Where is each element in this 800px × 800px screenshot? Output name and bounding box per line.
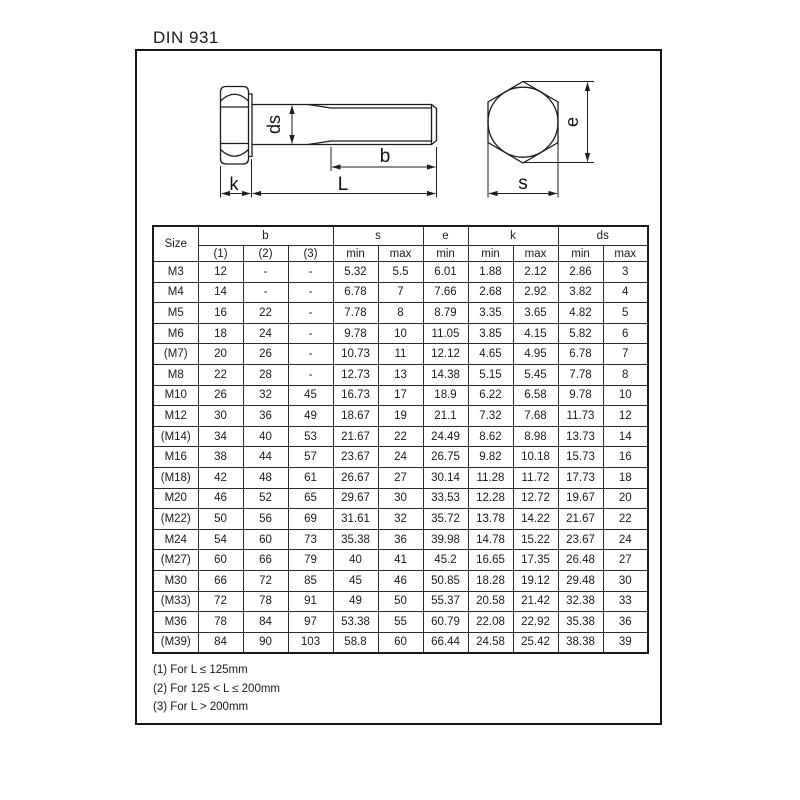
- table-cell: 42: [198, 467, 243, 488]
- dim-label-k: k: [230, 174, 240, 194]
- table-cell: 19.67: [558, 488, 603, 509]
- table-cell: 12.73: [333, 364, 378, 385]
- table-row: (M18)42486126.672730.1411.2811.7217.7318: [153, 467, 648, 488]
- table-cell: 49: [333, 591, 378, 612]
- technical-drawing: ds b k L s e: [136, 51, 658, 223]
- table-cell: 46: [378, 570, 423, 591]
- table-cell: 32.38: [558, 591, 603, 612]
- table-cell: -: [243, 282, 288, 303]
- table-row: M1638445723.672426.759.8210.1815.7316: [153, 447, 648, 468]
- table-cell: 65: [288, 488, 333, 509]
- table-cell: 3.65: [513, 303, 558, 324]
- table-cell: 84: [243, 612, 288, 633]
- table-cell: 26.48: [558, 550, 603, 571]
- column-subheader: (2): [243, 246, 288, 262]
- table-cell: 17.35: [513, 550, 558, 571]
- table-cell: 2.92: [513, 282, 558, 303]
- table-cell: 23.67: [558, 529, 603, 550]
- column-header-size: Size: [153, 226, 198, 262]
- table-cell: 8.98: [513, 426, 558, 447]
- column-group-header: b: [198, 226, 333, 246]
- table-cell: 14.38: [423, 364, 468, 385]
- table-row: M1026324516.731718.96.226.589.7810: [153, 385, 648, 406]
- table-cell: 6.01: [423, 262, 468, 283]
- table-cell: 60: [378, 632, 423, 653]
- table-cell: 66.44: [423, 632, 468, 653]
- table-cell: 38: [198, 447, 243, 468]
- table-cell: 21.42: [513, 591, 558, 612]
- table-cell: 14: [198, 282, 243, 303]
- table-cell: 11.73: [558, 406, 603, 427]
- table-cell: 10: [603, 385, 648, 406]
- table-cell: 36: [243, 406, 288, 427]
- page-title: DIN 931: [153, 28, 219, 48]
- footnotes: (1) For L ≤ 125mm (2) For 125 < L ≤ 200m…: [153, 661, 280, 717]
- table-cell: 30: [198, 406, 243, 427]
- table-cell: 20: [603, 488, 648, 509]
- table-cell: 60.79: [423, 612, 468, 633]
- table-cell: 23.67: [333, 447, 378, 468]
- table-cell: 28: [243, 364, 288, 385]
- table-cell: 26.67: [333, 467, 378, 488]
- table-cell: M12: [153, 406, 198, 427]
- table-cell: M3: [153, 262, 198, 283]
- table-cell: (M7): [153, 344, 198, 365]
- table-row: M51622-7.7888.793.353.654.825: [153, 303, 648, 324]
- table-row: (M33)727891495055.3720.5821.4232.3833: [153, 591, 648, 612]
- extension-lines: [221, 82, 595, 198]
- dim-label-ds: ds: [264, 115, 284, 134]
- column-group-header: ds: [558, 226, 648, 246]
- table-cell: 79: [288, 550, 333, 571]
- table-cell: (M33): [153, 591, 198, 612]
- table-cell: 55.37: [423, 591, 468, 612]
- table-cell: 22.92: [513, 612, 558, 633]
- table-cell: 22.08: [468, 612, 513, 633]
- table-cell: 58.8: [333, 632, 378, 653]
- table-cell: 39: [603, 632, 648, 653]
- table-cell: 18.9: [423, 385, 468, 406]
- table-cell: 26: [198, 385, 243, 406]
- column-subheader: (3): [288, 246, 333, 262]
- table-cell: 2.12: [513, 262, 558, 283]
- table-cell: 35.72: [423, 509, 468, 530]
- table-cell: 5: [603, 303, 648, 324]
- table-cell: 72: [243, 570, 288, 591]
- table-cell: 10.18: [513, 447, 558, 468]
- table-cell: 25.42: [513, 632, 558, 653]
- table-cell: 20: [198, 344, 243, 365]
- table-cell: 33: [603, 591, 648, 612]
- table-cell: 22: [243, 303, 288, 324]
- table-row: M312--5.325.56.011.882.122.863: [153, 262, 648, 283]
- table-cell: 27: [378, 467, 423, 488]
- column-subheader: max: [378, 246, 423, 262]
- table-cell: 15.22: [513, 529, 558, 550]
- table-row: M414--6.7877.662.682.923.824: [153, 282, 648, 303]
- table-cell: 49: [288, 406, 333, 427]
- table-cell: 30: [603, 570, 648, 591]
- table-cell: 40: [243, 426, 288, 447]
- table-cell: 5.32: [333, 262, 378, 283]
- column-subheader: min: [558, 246, 603, 262]
- table-cell: M16: [153, 447, 198, 468]
- column-subheader: min: [423, 246, 468, 262]
- table-cell: M5: [153, 303, 198, 324]
- table-cell: 10.73: [333, 344, 378, 365]
- table-row: (M27)606679404145.216.6517.3526.4827: [153, 550, 648, 571]
- column-subheader: max: [603, 246, 648, 262]
- dim-label-s: s: [518, 173, 528, 194]
- table-cell: 11.72: [513, 467, 558, 488]
- table-cell: 4.82: [558, 303, 603, 324]
- column-group-header: k: [468, 226, 558, 246]
- table-cell: 14.22: [513, 509, 558, 530]
- table-cell: 29.48: [558, 570, 603, 591]
- table-cell: 46: [198, 488, 243, 509]
- table-row: (M7)2026-10.731112.124.654.956.787: [153, 344, 648, 365]
- table-cell: 60: [198, 550, 243, 571]
- table-cell: 41: [378, 550, 423, 571]
- table-cell: 22: [378, 426, 423, 447]
- table-cell: 16.65: [468, 550, 513, 571]
- table-row: M30667285454650.8518.2819.1229.4830: [153, 570, 648, 591]
- table-cell: 5.5: [378, 262, 423, 283]
- table-cell: -: [288, 323, 333, 344]
- table-cell: 50: [198, 509, 243, 530]
- table-cell: 9.82: [468, 447, 513, 468]
- table-cell: 7.78: [558, 364, 603, 385]
- table-cell: 10: [378, 323, 423, 344]
- table-cell: 91: [288, 591, 333, 612]
- table-cell: 6.22: [468, 385, 513, 406]
- table-cell: 22: [603, 509, 648, 530]
- table-cell: 7.32: [468, 406, 513, 427]
- table-cell: (M14): [153, 426, 198, 447]
- table-cell: 12.72: [513, 488, 558, 509]
- column-subheader: max: [513, 246, 558, 262]
- table-cell: 21.1: [423, 406, 468, 427]
- table-cell: 4.15: [513, 323, 558, 344]
- table-cell: 30.14: [423, 467, 468, 488]
- table-cell: 57: [288, 447, 333, 468]
- footnote-3: (3) For L > 200mm: [153, 698, 280, 717]
- table-cell: 12.12: [423, 344, 468, 365]
- table-cell: 3.35: [468, 303, 513, 324]
- table-cell: 14.78: [468, 529, 513, 550]
- column-subheader: (1): [198, 246, 243, 262]
- table-cell: (M18): [153, 467, 198, 488]
- table-cell: M20: [153, 488, 198, 509]
- table-cell: 90: [243, 632, 288, 653]
- table-cell: M36: [153, 612, 198, 633]
- table-cell: (M27): [153, 550, 198, 571]
- table-row: M2454607335.383639.9814.7815.2223.6724: [153, 529, 648, 550]
- table-cell: 32: [378, 509, 423, 530]
- table-cell: 21.67: [333, 426, 378, 447]
- table-cell: 5.45: [513, 364, 558, 385]
- table-cell: 24: [603, 529, 648, 550]
- table-row: M2046526529.673033.5312.2812.7219.6720: [153, 488, 648, 509]
- table-cell: -: [288, 364, 333, 385]
- table-cell: 18.28: [468, 570, 513, 591]
- table-cell: 18: [603, 467, 648, 488]
- dimension-lines: [222, 83, 588, 194]
- column-subheader: min: [333, 246, 378, 262]
- table-cell: 16: [198, 303, 243, 324]
- table-row: (M22)50566931.613235.7213.7814.2221.6722: [153, 509, 648, 530]
- table-cell: 45: [333, 570, 378, 591]
- table-cell: 29.67: [333, 488, 378, 509]
- bolt-side-view: [221, 87, 437, 165]
- table-cell: 52: [243, 488, 288, 509]
- table-cell: 3.85: [468, 323, 513, 344]
- table-cell: 24: [378, 447, 423, 468]
- table-cell: 7: [378, 282, 423, 303]
- table-cell: 1.88: [468, 262, 513, 283]
- table-cell: 19: [378, 406, 423, 427]
- table-cell: 3: [603, 262, 648, 283]
- table-cell: 35.38: [333, 529, 378, 550]
- table-cell: 24.49: [423, 426, 468, 447]
- table-cell: 17: [378, 385, 423, 406]
- table-cell: 13.73: [558, 426, 603, 447]
- table-cell: 31.61: [333, 509, 378, 530]
- table-cell: 22: [198, 364, 243, 385]
- table-cell: 7: [603, 344, 648, 365]
- table-cell: 2.68: [468, 282, 513, 303]
- table-cell: (M39): [153, 632, 198, 653]
- table-cell: 12: [603, 406, 648, 427]
- table-cell: 24.58: [468, 632, 513, 653]
- spec-table: Sizebsekds(1)(2)(3)minmaxminminmaxminmax…: [152, 225, 649, 654]
- table-cell: 61: [288, 467, 333, 488]
- table-cell: 6.58: [513, 385, 558, 406]
- table-cell: 2.86: [558, 262, 603, 283]
- table-cell: M8: [153, 364, 198, 385]
- table-cell: 53: [288, 426, 333, 447]
- table-cell: -: [288, 262, 333, 283]
- table-cell: 33.53: [423, 488, 468, 509]
- table-cell: 32: [243, 385, 288, 406]
- table-cell: (M22): [153, 509, 198, 530]
- table-cell: 72: [198, 591, 243, 612]
- table-cell: 60: [243, 529, 288, 550]
- table-cell: 7.78: [333, 303, 378, 324]
- table-row: (M14)34405321.672224.498.628.9813.7314: [153, 426, 648, 447]
- table-cell: 69: [288, 509, 333, 530]
- table-cell: 53.38: [333, 612, 378, 633]
- column-group-header: e: [423, 226, 468, 246]
- table-row: M1230364918.671921.17.327.6811.7312: [153, 406, 648, 427]
- table-cell: 73: [288, 529, 333, 550]
- column-group-header: s: [333, 226, 423, 246]
- table-cell: 12: [198, 262, 243, 283]
- table-row: M82228-12.731314.385.155.457.788: [153, 364, 648, 385]
- table-cell: 30: [378, 488, 423, 509]
- table-cell: M10: [153, 385, 198, 406]
- table-cell: 103: [288, 632, 333, 653]
- table-cell: 78: [198, 612, 243, 633]
- table-cell: 48: [243, 467, 288, 488]
- column-subheader: min: [468, 246, 513, 262]
- table-cell: 54: [198, 529, 243, 550]
- table-row: (M39)849010358.86066.4424.5825.4238.3839: [153, 632, 648, 653]
- table-cell: -: [243, 262, 288, 283]
- table-cell: 78: [243, 591, 288, 612]
- table-cell: M6: [153, 323, 198, 344]
- table-cell: 45.2: [423, 550, 468, 571]
- table-cell: 50: [378, 591, 423, 612]
- table-cell: 11.28: [468, 467, 513, 488]
- table-cell: 4: [603, 282, 648, 303]
- table-cell: 34: [198, 426, 243, 447]
- hex-end-view: [488, 82, 558, 164]
- dim-label-L: L: [338, 174, 349, 195]
- table-cell: 36: [378, 529, 423, 550]
- table-cell: 16: [603, 447, 648, 468]
- table-cell: M4: [153, 282, 198, 303]
- dim-label-b: b: [380, 146, 391, 167]
- table-cell: 14: [603, 426, 648, 447]
- table-cell: 11: [378, 344, 423, 365]
- table-cell: 50.85: [423, 570, 468, 591]
- table-cell: 6.78: [333, 282, 378, 303]
- table-cell: 9.78: [558, 385, 603, 406]
- table-cell: 4.95: [513, 344, 558, 365]
- table-cell: 66: [198, 570, 243, 591]
- footnote-1: (1) For L ≤ 125mm: [153, 661, 280, 680]
- table-cell: 19.12: [513, 570, 558, 591]
- table-cell: 18.67: [333, 406, 378, 427]
- table-cell: 20.58: [468, 591, 513, 612]
- table-cell: 26: [243, 344, 288, 365]
- table-row: M61824-9.781011.053.854.155.826: [153, 323, 648, 344]
- table-cell: 8: [603, 364, 648, 385]
- table-cell: 9.78: [333, 323, 378, 344]
- table-cell: 18: [198, 323, 243, 344]
- table-cell: 5.15: [468, 364, 513, 385]
- table-cell: 12.28: [468, 488, 513, 509]
- table-cell: 27: [603, 550, 648, 571]
- table-cell: 45: [288, 385, 333, 406]
- table-cell: 21.67: [558, 509, 603, 530]
- table-cell: 85: [288, 570, 333, 591]
- table-cell: 17.73: [558, 467, 603, 488]
- table-row: M3678849753.385560.7922.0822.9235.3836: [153, 612, 648, 633]
- table-cell: -: [288, 344, 333, 365]
- table-cell: 6: [603, 323, 648, 344]
- table-cell: 7.68: [513, 406, 558, 427]
- table-cell: 44: [243, 447, 288, 468]
- table-cell: 38.38: [558, 632, 603, 653]
- table-cell: 8.62: [468, 426, 513, 447]
- table-cell: 39.98: [423, 529, 468, 550]
- footnote-2: (2) For 125 < L ≤ 200mm: [153, 680, 280, 699]
- table-cell: 3.82: [558, 282, 603, 303]
- table-cell: 4.65: [468, 344, 513, 365]
- table-cell: 56: [243, 509, 288, 530]
- table-cell: 8.79: [423, 303, 468, 324]
- table-cell: 26.75: [423, 447, 468, 468]
- table-cell: 7.66: [423, 282, 468, 303]
- table-cell: -: [288, 303, 333, 324]
- table-cell: 15.73: [558, 447, 603, 468]
- table-cell: 66: [243, 550, 288, 571]
- table-cell: M30: [153, 570, 198, 591]
- table-cell: 84: [198, 632, 243, 653]
- table-cell: 13: [378, 364, 423, 385]
- dim-label-e: e: [562, 117, 582, 127]
- table-cell: 6.78: [558, 344, 603, 365]
- table-cell: 36: [603, 612, 648, 633]
- table-cell: -: [288, 282, 333, 303]
- table-cell: 97: [288, 612, 333, 633]
- table-cell: M24: [153, 529, 198, 550]
- table-cell: 5.82: [558, 323, 603, 344]
- page: DIN 931: [0, 0, 800, 800]
- table-cell: 40: [333, 550, 378, 571]
- table-cell: 8: [378, 303, 423, 324]
- table-cell: 55: [378, 612, 423, 633]
- table-cell: 24: [243, 323, 288, 344]
- table-cell: 16.73: [333, 385, 378, 406]
- table-cell: 11.05: [423, 323, 468, 344]
- table-cell: 35.38: [558, 612, 603, 633]
- table-cell: 13.78: [468, 509, 513, 530]
